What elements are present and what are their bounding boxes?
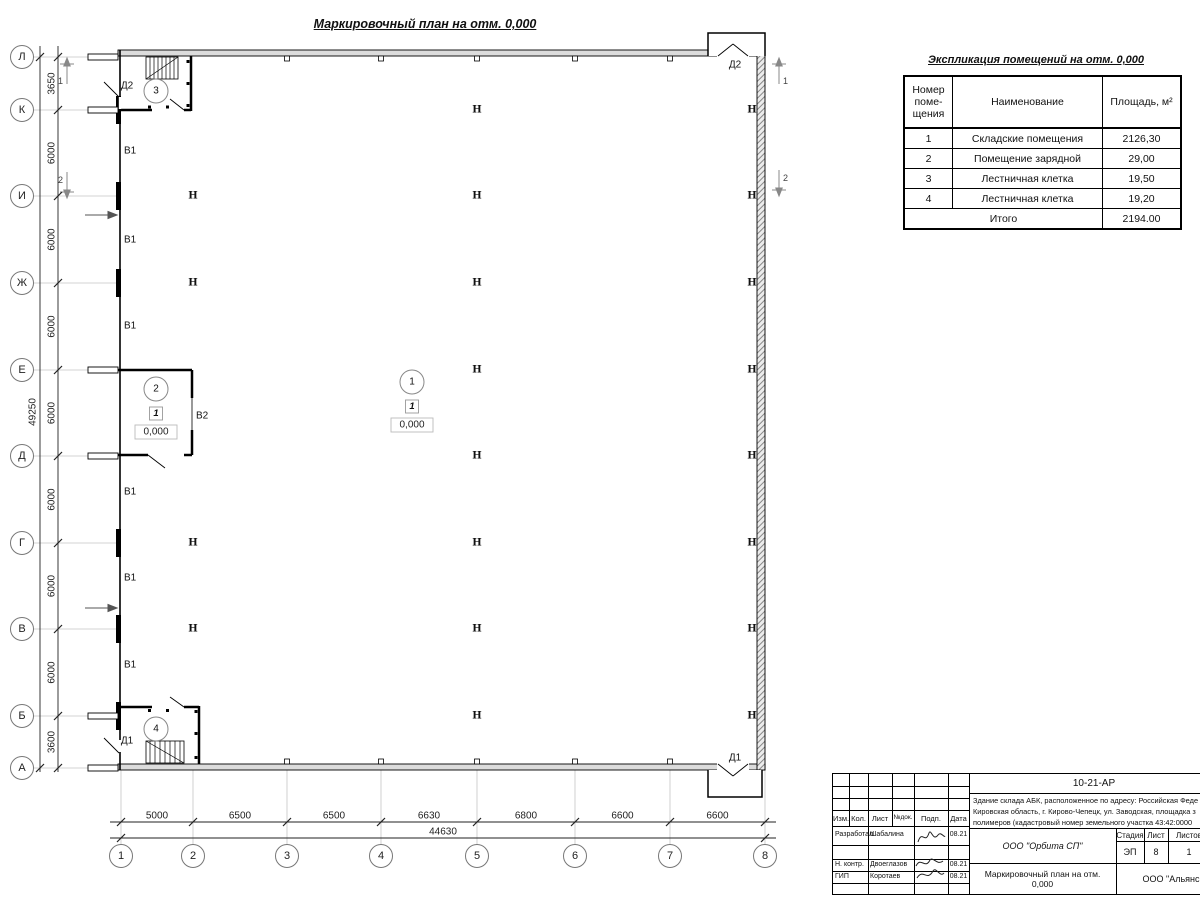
axis-E: Е: [18, 364, 25, 376]
column-icon: Н: [747, 365, 756, 376]
role-label: Н. контр.: [835, 861, 864, 868]
table-row: 4 Лестничная клетка 19,20: [904, 189, 1181, 209]
gate-label: В1: [124, 321, 137, 332]
vestibule-top-right: [708, 33, 765, 57]
drawing-sheet: Маркировочный план на отм. 0,000: [0, 0, 1200, 900]
role-name: Шабалина: [870, 831, 904, 838]
door-label: Д2: [729, 60, 742, 71]
dim-2-3: 6500: [229, 811, 252, 822]
axis-V: В: [18, 623, 25, 635]
gate-label: В1: [124, 660, 137, 671]
dim-K-I: 6000: [47, 141, 58, 164]
column-icon: Н: [472, 365, 481, 376]
floor-plan: Н Н Н Н Н Н Н Н Н Н Н Н Н Н Н Н Н Н Н Н …: [0, 0, 830, 900]
axis-G: Г: [19, 537, 25, 549]
column-icon: Н: [472, 451, 481, 462]
room-schedule: Экспликация помещений на отм. 0,000 Номе…: [903, 54, 1183, 230]
doc-number: 10-21-АР: [969, 778, 1200, 789]
dim-7-8: 6600: [706, 811, 729, 822]
dim-B-A: 3600: [47, 730, 58, 753]
total-label: Итого: [904, 209, 1103, 230]
gate-label: В2: [196, 411, 209, 422]
table-row: 3 Лестничная клетка 19,50: [904, 169, 1181, 189]
axis-B: Б: [18, 710, 25, 722]
client-org: ООО "Альянс: [1116, 863, 1200, 894]
stage-label: Стадия: [1116, 831, 1144, 840]
axis-Zh: Ж: [17, 277, 27, 289]
room-area-cell: 19,50: [1103, 169, 1182, 189]
col-list: Лист: [868, 814, 892, 823]
dim-3-4: 6500: [323, 811, 346, 822]
signature: [913, 856, 947, 884]
schedule-table: Номер поме- щения Наименование Площадь, …: [903, 75, 1182, 230]
room-area-cell: 19,20: [1103, 189, 1182, 209]
bottom-dimensions: 5000 6500 6500 6630 6800 6600 6600 44630…: [110, 811, 777, 868]
room-number-cell: 4: [904, 189, 953, 209]
room-markers: 1 1 0,000 2 1 0,000 3 4: [135, 79, 433, 741]
column-icon: Н: [747, 105, 756, 116]
axis-3: 3: [284, 850, 290, 862]
room-2-number: 2: [153, 384, 159, 395]
role-label: ГИП: [835, 873, 849, 880]
opening-labels: В1 В1 В1 В1 В1 В1 В2 Д2 Д2 Д1 Д1: [121, 60, 742, 764]
wall-column-ticks: [285, 56, 673, 764]
dim-5-6: 6800: [515, 811, 538, 822]
title-block: Изм. Кол. Лист №док. Подп. Дата Разработ…: [832, 773, 1200, 895]
room-1-floor-type: 1: [409, 401, 414, 412]
role-name: Двоеглазов: [870, 861, 907, 868]
door-label: Д1: [121, 736, 134, 747]
sheet-title: Маркировочный план на отм. 0,000: [969, 863, 1116, 894]
dim-V-B: 6000: [47, 661, 58, 684]
dim-total-width: 44630: [429, 827, 457, 838]
axis-A: А: [18, 762, 26, 774]
role-date: 08.21: [948, 861, 969, 868]
axis-1: 1: [118, 850, 124, 862]
room-area-cell: 29,00: [1103, 149, 1182, 169]
room-4-number: 4: [153, 724, 159, 735]
dim-E-D: 6000: [47, 401, 58, 424]
project-description-line: полимеров (кадастровый номер земельного …: [973, 818, 1200, 827]
table-row: 1 Складские помещения 2126,30: [904, 128, 1181, 149]
sheet-title-line1: Маркировочный план на отм.: [985, 869, 1101, 879]
door-label: Д2: [121, 81, 134, 92]
room-name-cell: Складские помещения: [953, 128, 1103, 149]
dim-6-7: 6600: [611, 811, 634, 822]
room-3-number: 3: [153, 86, 159, 97]
gate-label: В1: [124, 573, 137, 584]
role-name: Коротаев: [870, 873, 900, 880]
column-icon: Н: [747, 191, 756, 202]
room-name-cell: Лестничная клетка: [953, 189, 1103, 209]
col-name: Наименование: [953, 76, 1103, 128]
design-org: ООО "Орбита СП": [969, 828, 1116, 863]
role-date: 08.21: [948, 831, 969, 838]
axis-4: 4: [378, 850, 384, 862]
project-description-line: Кировская область, г. Кирово-Чепецк, ул.…: [973, 807, 1200, 816]
section-2-mark: 2: [58, 175, 63, 185]
col-room-number: Номер поме- щения: [904, 76, 953, 128]
gate-label: В1: [124, 487, 137, 498]
sheets-label: Листов: [1168, 831, 1200, 840]
stage-value: ЭП: [1116, 847, 1144, 857]
plan-title: Маркировочный план на отм. 0,000: [280, 17, 570, 31]
column-icon: Н: [188, 538, 197, 549]
col-area: Площадь, м²: [1103, 76, 1182, 128]
sheets-value: 1: [1168, 847, 1200, 857]
total-area: 2194.00: [1103, 209, 1182, 230]
column-icon: Н: [747, 538, 756, 549]
room-name-cell: Лестничная клетка: [953, 169, 1103, 189]
table-row: 2 Помещение зарядной 29,00: [904, 149, 1181, 169]
column-icon: Н: [747, 624, 756, 635]
steel-columns: Н Н Н Н Н Н Н Н Н Н Н Н Н Н Н Н Н Н Н Н: [188, 105, 756, 722]
dim-Zh-E: 6000: [47, 315, 58, 338]
axis-K: К: [19, 104, 26, 116]
col-izm: Изм.: [833, 814, 849, 823]
section-2-mark: 2: [783, 173, 788, 183]
axis-6: 6: [572, 850, 578, 862]
schedule-header-row: Номер поме- щения Наименование Площадь, …: [904, 76, 1181, 128]
room-2-floor-type: 1: [153, 408, 158, 419]
door-label: Д1: [729, 753, 742, 764]
room-1-elevation: 0,000: [399, 420, 424, 431]
gate-label: В1: [124, 146, 137, 157]
room-number-cell: 2: [904, 149, 953, 169]
room-name-cell: Помещение зарядной: [953, 149, 1103, 169]
dim-I-Zh: 6000: [47, 228, 58, 251]
project-description-line: Здание склада АБК, расположенное по адре…: [973, 796, 1200, 805]
signature: [915, 827, 947, 847]
col-ndok: №док.: [892, 814, 914, 821]
col-kol: Кол.: [849, 814, 868, 823]
column-icon: Н: [747, 451, 756, 462]
column-icon: Н: [472, 278, 481, 289]
schedule-title: Экспликация помещений на отм. 0,000: [903, 54, 1169, 66]
axis-leader-lines: [33, 57, 765, 845]
left-porch-slabs: [88, 54, 118, 771]
dim-G-V: 6000: [47, 574, 58, 597]
schedule-total-row: Итого 2194.00: [904, 209, 1181, 230]
axis-L: Л: [18, 51, 25, 63]
dim-4-5: 6630: [418, 811, 441, 822]
section-1-mark: 1: [783, 76, 788, 86]
role-date: 08.21: [948, 873, 969, 880]
axis-I: И: [18, 190, 26, 202]
column-icon: Н: [472, 624, 481, 635]
building-walls: [118, 50, 765, 770]
room-number-cell: 1: [904, 128, 953, 149]
column-icon: Н: [188, 191, 197, 202]
axis-5: 5: [474, 850, 480, 862]
sheet-title-line2: 0,000: [1032, 879, 1053, 889]
col-data: Дата: [948, 814, 969, 823]
axis-7: 7: [667, 850, 673, 862]
entry-arrows: [85, 212, 117, 612]
left-dimensions: 3650 6000 6000 6000 6000 6000 6000 6000 …: [11, 46, 63, 780]
dim-1-2: 5000: [146, 811, 169, 822]
sheet-value: 8: [1144, 847, 1168, 857]
column-icon: Н: [472, 191, 481, 202]
arrow-right-icon: [108, 212, 117, 219]
dim-L-K: 3650: [47, 72, 58, 95]
sheet-label: Лист: [1144, 831, 1168, 840]
room-number-cell: 3: [904, 169, 953, 189]
column-icon: Н: [188, 624, 197, 635]
dim-total-height: 49250: [28, 398, 39, 426]
room-2-elevation: 0,000: [143, 427, 168, 438]
column-icon: Н: [472, 711, 481, 722]
column-icon: Н: [188, 278, 197, 289]
room-area-cell: 2126,30: [1103, 128, 1182, 149]
col-podp: Подп.: [914, 814, 948, 823]
dim-D-G: 6000: [47, 488, 58, 511]
axis-2: 2: [190, 850, 196, 862]
axis-D: Д: [18, 450, 26, 462]
gate-label: В1: [124, 235, 137, 246]
column-icon: Н: [747, 278, 756, 289]
role-label: Разработал: [835, 831, 873, 838]
arrow-right-icon: [108, 605, 117, 612]
column-icon: Н: [747, 711, 756, 722]
section-1-mark: 1: [58, 76, 63, 86]
room-1-number: 1: [409, 377, 415, 388]
column-icon: Н: [472, 105, 481, 116]
axis-8: 8: [762, 850, 768, 862]
column-icon: Н: [472, 538, 481, 549]
